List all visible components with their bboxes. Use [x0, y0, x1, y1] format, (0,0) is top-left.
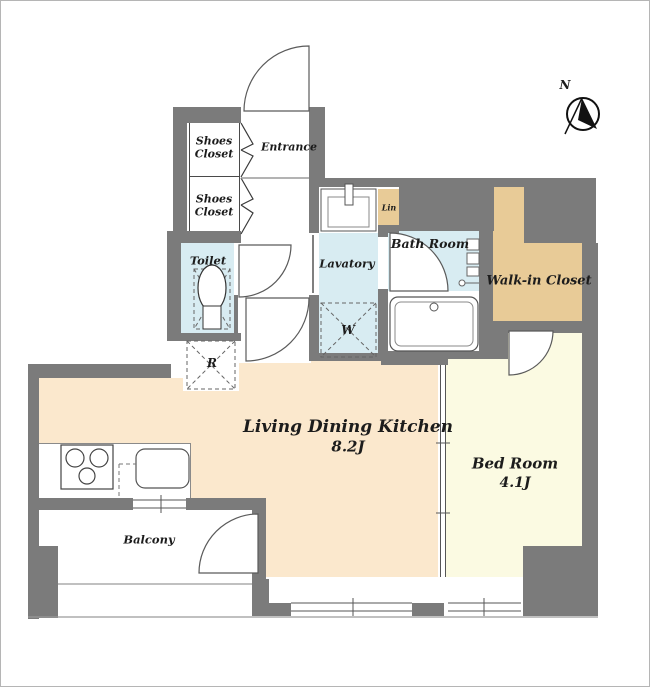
window-kitchen [133, 495, 186, 513]
window-ldk [291, 598, 412, 616]
label-balcony: Balcony [123, 533, 174, 546]
fixtures-overlay [1, 1, 649, 686]
balcony-door-arc [199, 514, 258, 573]
walkin-door-arc [509, 331, 553, 375]
label-shoes-closet-upper: ShoesCloset [195, 135, 234, 160]
label-shoes-closet-lower: ShoesCloset [195, 193, 234, 218]
stove [61, 445, 113, 489]
label-refrigerator: R [207, 357, 217, 371]
label-linen: Lin [382, 203, 396, 212]
label-ldk: Living Dining Kitchen [243, 418, 453, 438]
bathtub [390, 297, 478, 351]
entrance-door-arc [244, 46, 309, 111]
floor-plan: ShoesCloset ShoesCloset Entrance Toilet … [0, 0, 650, 687]
window-bedroom [448, 598, 521, 616]
kitchen-sink [136, 449, 189, 488]
toilet-fixture [194, 265, 230, 329]
label-toilet: Toilet [190, 254, 226, 267]
label-entrance: Entrance [261, 142, 317, 155]
vanity-sink [321, 184, 376, 231]
label-walkin-closet: Walk-in Closet [486, 275, 591, 290]
toilet-door-arc [239, 245, 291, 297]
folding-door-icon [241, 123, 253, 177]
folding-door-icon [241, 178, 253, 234]
label-lavatory: Lavatory [319, 257, 374, 270]
label-ldk-size: 8.2J [331, 438, 364, 455]
label-bedroom: Bed Room [472, 455, 558, 472]
label-bath: Bath Room [391, 237, 469, 251]
label-north: N [560, 79, 571, 93]
north-compass-icon [565, 98, 599, 134]
ldk-door-arc [246, 298, 309, 361]
sliding-door-partition [436, 365, 450, 577]
label-washer: W [341, 324, 354, 338]
counter-dashed-line [119, 464, 136, 498]
label-bedroom-size: 4.1J [500, 475, 531, 491]
